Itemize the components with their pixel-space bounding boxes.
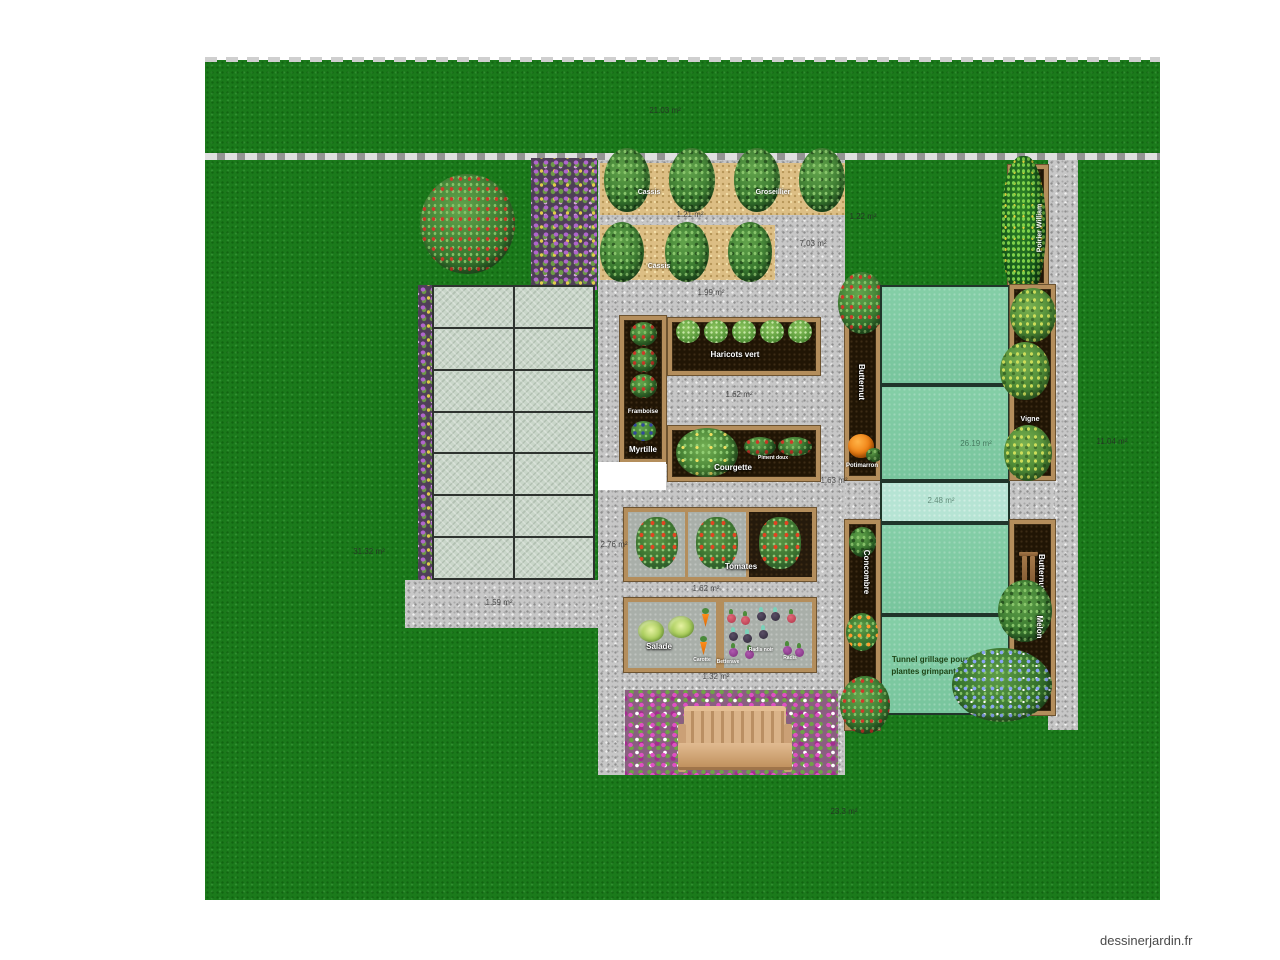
bean-plant-icon[interactable] — [704, 320, 728, 343]
pepper-plant-icon[interactable] — [744, 437, 776, 456]
bed-label: Salade — [646, 643, 672, 651]
area-measurement: 2.76 m² — [600, 541, 627, 549]
radish-icon[interactable] — [727, 614, 736, 623]
garden-plan-canvas: { "watermark": "dessinerjardin.fr", "col… — [0, 0, 1280, 960]
radish-icon[interactable] — [741, 616, 750, 625]
tunnel-annotation-line1: Tunnel grillage pour — [892, 656, 968, 664]
currant-bush-icon[interactable] — [604, 148, 650, 212]
tarp-3[interactable] — [880, 523, 1010, 615]
empty-patch — [598, 462, 666, 490]
area-measurement: 1.22 m² — [849, 213, 876, 221]
trellis-icon[interactable] — [1022, 556, 1027, 583]
currant-bush-icon[interactable] — [600, 222, 644, 282]
bed-label: Groseillier — [756, 189, 791, 196]
currant-bush-icon[interactable] — [728, 222, 772, 282]
raspberry-plant-icon[interactable] — [630, 374, 657, 398]
bench-backrest — [684, 706, 786, 744]
gravel-patch-right-gap[interactable] — [1010, 481, 1055, 523]
blueberry-plant-icon[interactable] — [631, 421, 656, 441]
bed-label: Radis — [783, 656, 797, 661]
bed-label: Melon — [1035, 615, 1043, 638]
bed-label: Potimarron — [846, 463, 878, 469]
tomato-vine-icon[interactable] — [838, 272, 886, 334]
ornamental-tree-icon[interactable] — [420, 174, 515, 274]
pepper-plant-icon[interactable] — [778, 437, 812, 456]
area-measurement: 1.63 m² — [820, 477, 847, 485]
vine-bush-icon[interactable] — [1004, 425, 1052, 481]
area-measurement: 1.59 m² — [485, 599, 512, 607]
bed-label: Cassis — [648, 263, 671, 270]
bed-label: Haricots vert — [711, 351, 760, 359]
bed-label: Cassis — [638, 189, 661, 196]
bean-plant-icon[interactable] — [676, 320, 700, 343]
flower-bed-top-strip[interactable] — [531, 158, 597, 290]
bed-label: Carotte — [693, 658, 711, 663]
currant-bush-icon[interactable] — [734, 148, 780, 212]
tomato-plant-icon[interactable] — [636, 517, 678, 569]
black-radish-icon[interactable] — [729, 632, 738, 641]
area-measurement: 21.03 m² — [649, 107, 681, 115]
bench-seat — [678, 743, 792, 767]
gravel-patch-left-gap[interactable] — [845, 481, 880, 523]
trellis-icon[interactable] — [1019, 552, 1038, 556]
area-measurement: 2.48 m² — [927, 497, 954, 505]
black-radish-icon[interactable] — [757, 612, 766, 621]
raspberry-plant-icon[interactable] — [630, 322, 657, 346]
tomato-plant-icon[interactable] — [759, 517, 801, 569]
tarp-1[interactable] — [880, 285, 1010, 385]
tree-label: Poirier William — [1037, 204, 1044, 253]
area-measurement: 1.21 m² — [676, 211, 703, 219]
black-radish-icon[interactable] — [743, 634, 752, 643]
trellis-icon[interactable] — [1030, 556, 1035, 583]
area-measurement: 1.99 m² — [697, 289, 724, 297]
area-measurement: 7.03 m² — [799, 240, 826, 248]
black-radish-icon[interactable] — [759, 630, 768, 639]
tarp-2[interactable] — [880, 385, 1010, 481]
lettuce-icon[interactable] — [668, 616, 694, 638]
bean-plant-icon[interactable] — [760, 320, 784, 343]
beet-icon[interactable] — [729, 648, 738, 657]
paved-terrace[interactable] — [432, 285, 595, 580]
garden-bench[interactable] — [678, 706, 792, 778]
area-measurement: 1.32 m² — [702, 673, 729, 681]
tomato-bed[interactable] — [624, 508, 816, 581]
area-measurement: 1.62 m² — [692, 585, 719, 593]
bed-label: Vigne — [1021, 416, 1040, 423]
red-flower-bush-icon[interactable] — [840, 676, 890, 734]
vine-bush-icon[interactable] — [1010, 288, 1056, 342]
plot-boundary-dashed-line-top — [205, 57, 1160, 62]
area-measurement: 1.62 m² — [725, 391, 752, 399]
currant-bush-icon[interactable] — [669, 148, 715, 212]
raspberry-plant-icon[interactable] — [630, 348, 657, 372]
bed-label: Myrtille — [629, 446, 657, 454]
vine-bush-icon[interactable] — [1000, 342, 1050, 400]
area-measurement: 11.04 m² — [1097, 438, 1128, 446]
bean-plant-icon[interactable] — [788, 320, 812, 343]
bed-label: Betterave — [717, 660, 740, 665]
bed-label: Tomates — [725, 563, 757, 571]
bean-plant-icon[interactable] — [732, 320, 756, 343]
beet-icon[interactable] — [783, 646, 792, 655]
bed-label: Framboise — [628, 409, 658, 415]
lettuce-icon[interactable] — [638, 620, 664, 642]
currant-bush-icon[interactable] — [799, 148, 845, 212]
area-measurement: 31.32 m² — [353, 548, 385, 556]
black-radish-icon[interactable] — [771, 612, 780, 621]
bed-label: Courgette — [714, 464, 752, 472]
bed-label: Butternut — [857, 364, 865, 400]
currant-bush-icon[interactable] — [665, 222, 709, 282]
blue-flower-bush-icon[interactable] — [952, 648, 1052, 722]
area-measurement: 26.19 m² — [960, 440, 992, 448]
bed-label: Concombre — [862, 550, 870, 594]
nasturtium-flowers-icon[interactable] — [846, 613, 878, 651]
site-watermark: dessinerjardin.fr — [1100, 933, 1193, 948]
area-measurement: 23.3 m² — [830, 808, 857, 816]
bed-label: Radis noir — [749, 648, 773, 653]
bed-label: Piment doux — [758, 456, 788, 461]
flower-strip-left[interactable] — [418, 285, 432, 580]
radish-icon[interactable] — [787, 614, 796, 623]
